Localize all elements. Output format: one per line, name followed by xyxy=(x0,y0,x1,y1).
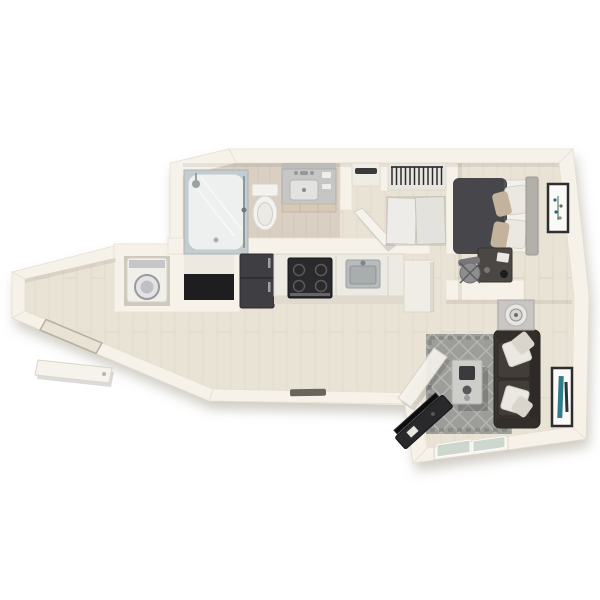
seat-cushion xyxy=(498,342,530,378)
table-tray xyxy=(459,366,475,380)
wall-west-tip xyxy=(12,272,25,318)
sofa xyxy=(494,330,540,428)
tv-screen xyxy=(394,393,439,434)
art-teal-stroke xyxy=(557,376,563,418)
hangers xyxy=(392,167,442,185)
wall-top xyxy=(229,149,573,163)
bathroom xyxy=(184,163,396,254)
pillow-white xyxy=(504,185,530,216)
cabinet-peninsula xyxy=(404,260,434,312)
mattress xyxy=(456,180,534,252)
glass-pane xyxy=(473,437,505,453)
open-door-leaf xyxy=(398,348,450,411)
sliding-panel xyxy=(415,196,446,244)
wall-bedroom-west xyxy=(446,163,458,254)
bedroom-floor xyxy=(452,163,571,300)
pillow-white xyxy=(503,219,528,249)
sink-faucet xyxy=(361,261,366,266)
kitchen-sink xyxy=(346,260,380,288)
bathroom-door-open xyxy=(354,208,396,252)
table-decor xyxy=(463,386,472,395)
wood-grain xyxy=(25,163,574,449)
washer-niche xyxy=(124,256,170,306)
throw-pillow xyxy=(510,330,535,355)
glass-reflection xyxy=(192,176,242,236)
stacked-washer xyxy=(127,258,167,302)
vanity-with-sink xyxy=(282,163,336,212)
walls xyxy=(12,149,589,463)
bedroom xyxy=(453,177,568,283)
unit-outline xyxy=(12,149,589,463)
wall-east xyxy=(559,149,589,439)
hallway-closets xyxy=(352,163,446,246)
sink-drain xyxy=(302,188,306,192)
desk-papers xyxy=(496,252,509,263)
wall-shadows xyxy=(25,163,572,304)
headboard xyxy=(526,177,538,255)
washer-door xyxy=(135,275,159,299)
console-item xyxy=(406,426,418,438)
utility-shelf-niche xyxy=(184,254,234,300)
hanging-closet xyxy=(388,163,446,190)
sink-basin xyxy=(290,180,318,200)
linen-closet xyxy=(352,163,380,186)
washer-control-panel xyxy=(129,260,165,268)
door-threshold xyxy=(290,389,326,397)
diamond-pattern-rug xyxy=(426,334,512,434)
vanity-counter xyxy=(282,169,336,204)
bathroom-floor xyxy=(183,163,340,256)
burner xyxy=(294,281,305,292)
tub-drain xyxy=(214,238,219,243)
lamp-shade xyxy=(505,304,527,326)
chair-back xyxy=(458,256,481,267)
closet-shelf xyxy=(355,168,377,174)
wall-living-west xyxy=(405,402,427,463)
shower-head-icon xyxy=(192,180,200,188)
desk-chair xyxy=(458,256,481,283)
tub xyxy=(188,174,244,250)
pillow-tan xyxy=(490,221,510,249)
framed-botanical-art xyxy=(548,184,568,232)
living-room xyxy=(391,300,572,460)
laundry-closet xyxy=(124,254,234,306)
oven-handle xyxy=(290,293,330,296)
floors xyxy=(25,163,574,449)
wall-bathroom-east xyxy=(340,163,352,210)
wall-main-south xyxy=(209,389,419,404)
throw-pillow xyxy=(502,337,533,368)
cabinet-front xyxy=(274,296,404,304)
pillow-tan xyxy=(491,190,512,217)
wall-shower-west xyxy=(170,149,236,248)
refrigerator xyxy=(240,254,274,308)
wall-laundry-bump xyxy=(114,244,240,312)
wall-southwest-slant xyxy=(12,311,213,401)
mirror-cabinet xyxy=(282,163,336,169)
entry-doorway xyxy=(40,320,102,354)
burner xyxy=(316,281,327,292)
side-table-with-lamp xyxy=(498,300,534,330)
sliding-door-closet xyxy=(386,196,446,246)
framed-teal-art xyxy=(552,368,572,426)
sofa-arm xyxy=(496,418,538,428)
chair-base xyxy=(460,263,480,283)
door-leaf xyxy=(354,208,392,246)
throw-pillow xyxy=(510,395,534,419)
entry xyxy=(35,320,326,397)
toilet-bowl xyxy=(253,196,277,230)
glass-pane xyxy=(437,440,470,457)
desk xyxy=(478,248,512,282)
toilet xyxy=(252,184,278,230)
media-console-with-tv xyxy=(391,390,453,449)
countertop-run xyxy=(274,254,404,296)
burner xyxy=(294,265,305,276)
kitchen xyxy=(240,254,434,312)
range-cooktop xyxy=(288,258,332,298)
wall-bedroom-half xyxy=(446,280,524,300)
door-knob xyxy=(102,372,106,376)
sliding-glass-door xyxy=(434,436,508,460)
sliding-panel xyxy=(386,198,417,245)
wood-floors xyxy=(25,163,574,449)
coffee-table xyxy=(452,360,488,411)
chair-seat xyxy=(460,263,480,283)
burner xyxy=(316,265,327,276)
floor-plan xyxy=(0,0,600,600)
main-floor xyxy=(25,256,574,449)
faucet-icon xyxy=(300,171,308,175)
duvet xyxy=(453,178,507,254)
bed xyxy=(453,177,538,255)
desk-lamp xyxy=(500,270,508,278)
fridge-handle xyxy=(268,258,271,268)
vanity-cabinet-front xyxy=(282,204,336,212)
throw-pillow xyxy=(500,385,530,415)
entry-door-open xyxy=(35,360,112,383)
wall-kitchen-divider xyxy=(168,238,430,254)
unit-drop-shadow xyxy=(15,157,592,471)
seat-cushion xyxy=(498,380,530,416)
wall-living-south xyxy=(413,427,586,463)
toiletries xyxy=(322,172,331,178)
sofa-back xyxy=(530,332,540,426)
wall-closet-divider xyxy=(380,163,388,191)
glass-shower-tub xyxy=(184,170,248,254)
rug-border xyxy=(430,338,508,430)
wall-northwest-slant xyxy=(12,246,116,279)
hall-floor xyxy=(340,163,452,256)
toilet-tank xyxy=(252,184,278,196)
sofa-arm xyxy=(496,330,538,340)
